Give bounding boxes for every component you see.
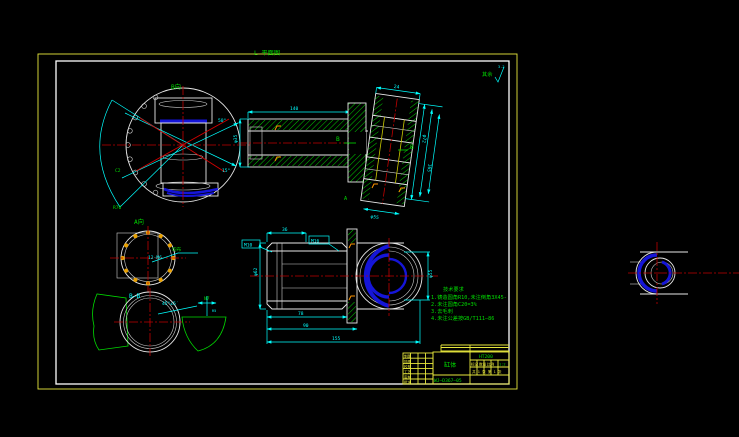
detail-dim: R5 — [212, 309, 216, 313]
side-thread-callout: M16 — [311, 239, 320, 245]
tilted-dim-top: 24 — [393, 84, 400, 91]
field-mark: 标记 — [471, 362, 479, 367]
tilted-dim-r1: φ72 — [420, 134, 427, 143]
bb-angle-dim: 45°±5′ — [162, 301, 179, 307]
front-view-label: B向 — [171, 83, 181, 91]
section-label-b2: B — [410, 144, 414, 151]
side-dim-left: φ62 — [253, 267, 259, 276]
section-label-b1: B — [336, 136, 340, 143]
sheet-info: 共 1 张 第 1 张 — [472, 369, 502, 374]
side-dim-b2: 90 — [303, 323, 309, 329]
drawing-sheet: L 平面图 其余 3.2 — [0, 0, 739, 437]
sig-label: 校核 — [404, 364, 412, 369]
roughness-value: 3.2 — [498, 65, 505, 69]
drawing-number: WJ—D367—05 — [434, 378, 462, 384]
front-fan-radius-label: R70 — [113, 205, 122, 211]
field-qty: 数量 — [479, 362, 487, 367]
pipe-hatch-top — [248, 120, 348, 130]
note-line: 1.铸造圆角R10,未注倒角3X45- — [431, 293, 507, 301]
side-dim-top: 36 — [282, 227, 288, 233]
scale-value: 1:2 — [499, 363, 506, 367]
side-callout-box: M10 — [244, 243, 253, 249]
side-dim-b3: 155 — [332, 336, 341, 342]
bolt-callout: 12-M6 — [148, 255, 162, 261]
tilted-dim-bottom: φ55 — [370, 214, 379, 221]
sig-label: 批准 — [404, 379, 412, 384]
bolt-callout-note: 均布 — [172, 246, 182, 253]
note-line: 4.未注公差按GB/T111—86 — [431, 314, 494, 322]
surface-default-label: 其余 — [482, 70, 493, 78]
note-line: 2.未注圆角C20=3% — [431, 300, 478, 308]
cad-drawing-canvas[interactable]: L 平面图 其余 3.2 — [0, 0, 739, 437]
sig-label: 描图 — [404, 359, 412, 364]
plan-label: L 平面图 — [254, 50, 280, 57]
tilted-dim-r2: 165 — [425, 163, 432, 172]
notes-title: 技术要求 — [443, 285, 465, 293]
front-chamfer-label: C2 — [115, 168, 121, 174]
material-value: HT200 — [479, 354, 493, 360]
sig-label: 制图 — [404, 354, 412, 359]
note-line: 3.去毛刺 — [431, 307, 453, 315]
side-dim-right: φ55 — [428, 269, 434, 278]
side-dim-b1: 78 — [298, 311, 304, 317]
detail-label: N7 — [204, 296, 210, 302]
front-angle-dim: 50° — [218, 118, 227, 124]
bolt-view-label: A向 — [134, 218, 144, 226]
sig-label: 工艺 — [404, 369, 412, 374]
part-name: 缸体 — [444, 361, 457, 369]
pipe-bore-dim: φ35 — [233, 134, 239, 143]
pipe-length-dim: 140 — [290, 106, 299, 112]
sig-label: 审核 — [404, 374, 412, 379]
bb-title: B—B — [129, 293, 140, 300]
front-angle-dim2: 15° — [222, 168, 231, 174]
pipe-hatch-bottom — [248, 156, 348, 166]
field-scale: 比例 — [487, 362, 495, 367]
